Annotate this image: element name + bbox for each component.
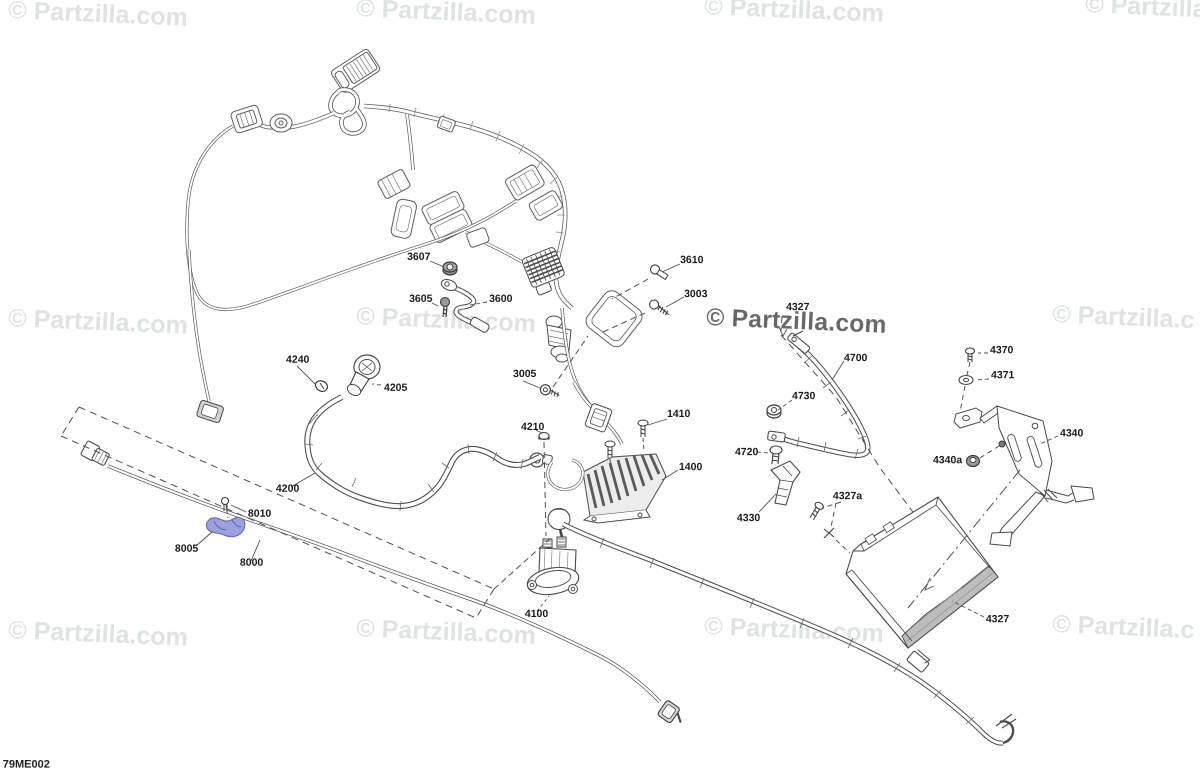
svg-text:8005: 8005 [175,543,199,555]
svg-text:4100: 4100 [525,608,549,620]
svg-text:1400: 1400 [679,461,703,473]
svg-text:4371: 4371 [991,369,1015,381]
svg-text:4340a: 4340a [933,454,962,466]
svg-text:4370: 4370 [990,344,1014,356]
svg-text:4205: 4205 [384,382,408,394]
svg-text:79ME002: 79ME002 [3,759,50,771]
svg-text:3005: 3005 [513,368,537,380]
svg-text:8000: 8000 [240,557,264,569]
svg-text:4700: 4700 [844,352,868,364]
svg-text:4240: 4240 [286,354,310,366]
svg-text:4200: 4200 [276,483,300,495]
svg-text:4327: 4327 [986,613,1010,625]
svg-text:4730: 4730 [792,390,816,402]
svg-text:4327a: 4327a [833,490,862,502]
svg-text:8010: 8010 [248,508,272,520]
svg-text:3610: 3610 [680,254,704,266]
svg-text:3003: 3003 [684,288,708,300]
svg-text:4330: 4330 [737,512,761,524]
svg-text:3605: 3605 [409,293,433,305]
svg-text:4720: 4720 [735,446,759,458]
svg-text:3607: 3607 [407,251,431,263]
svg-text:1410: 1410 [667,408,691,420]
svg-text:3600: 3600 [489,293,513,305]
svg-text:4210: 4210 [521,421,545,433]
svg-text:4340: 4340 [1060,427,1084,439]
